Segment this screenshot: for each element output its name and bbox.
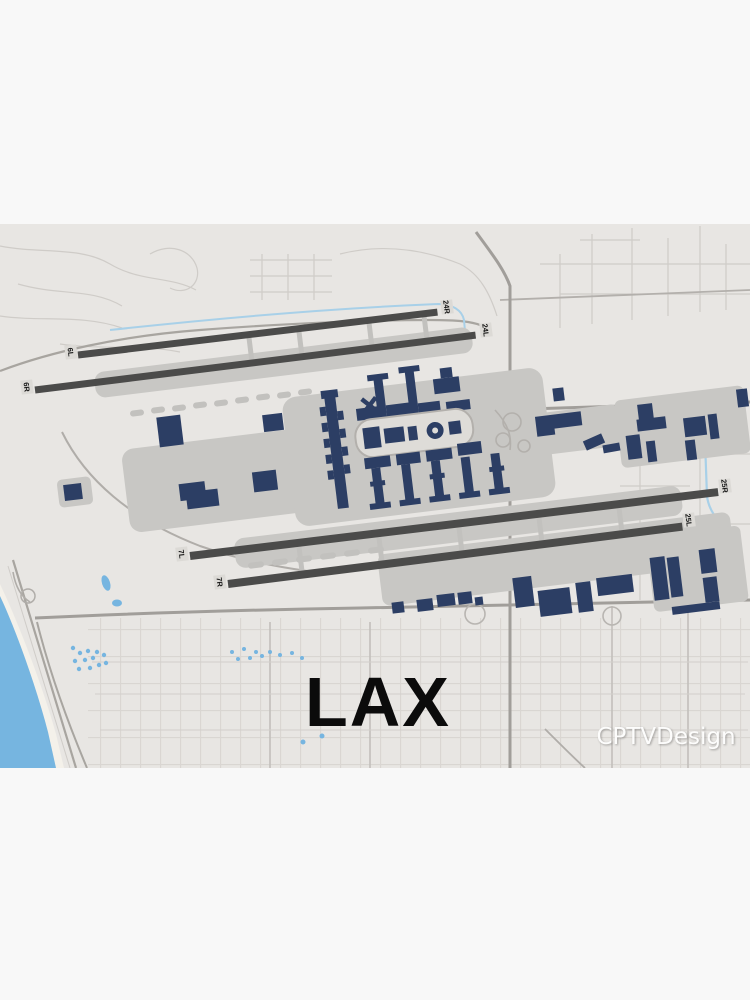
runway-label-24l: 24L xyxy=(480,323,491,337)
poster-page: 6L 6R 24R 24L 7L 7R 25R 25L xyxy=(0,0,750,1000)
watermark: CPTVDesign xyxy=(596,724,735,750)
runway-label-25r: 25R xyxy=(719,479,730,494)
lax-map-graphic: 6L 6R 24R 24L 7L 7R 25R 25L xyxy=(0,224,750,768)
runway-label-25l: 25L xyxy=(683,513,694,527)
runway-label-6r: 6R xyxy=(21,382,31,393)
airport-code-title: LAX xyxy=(305,663,451,741)
bottom-margin xyxy=(0,768,750,1000)
lax-airport-map: 6L 6R 24R 24L 7L 7R 25R 25L xyxy=(0,224,750,768)
runway-label-7r: 7R xyxy=(214,577,224,588)
runway-label-7l: 7L xyxy=(177,549,187,559)
top-margin xyxy=(0,0,750,224)
runway-label-24r: 24R xyxy=(441,300,452,315)
runway-label-6l: 6L xyxy=(66,347,76,357)
